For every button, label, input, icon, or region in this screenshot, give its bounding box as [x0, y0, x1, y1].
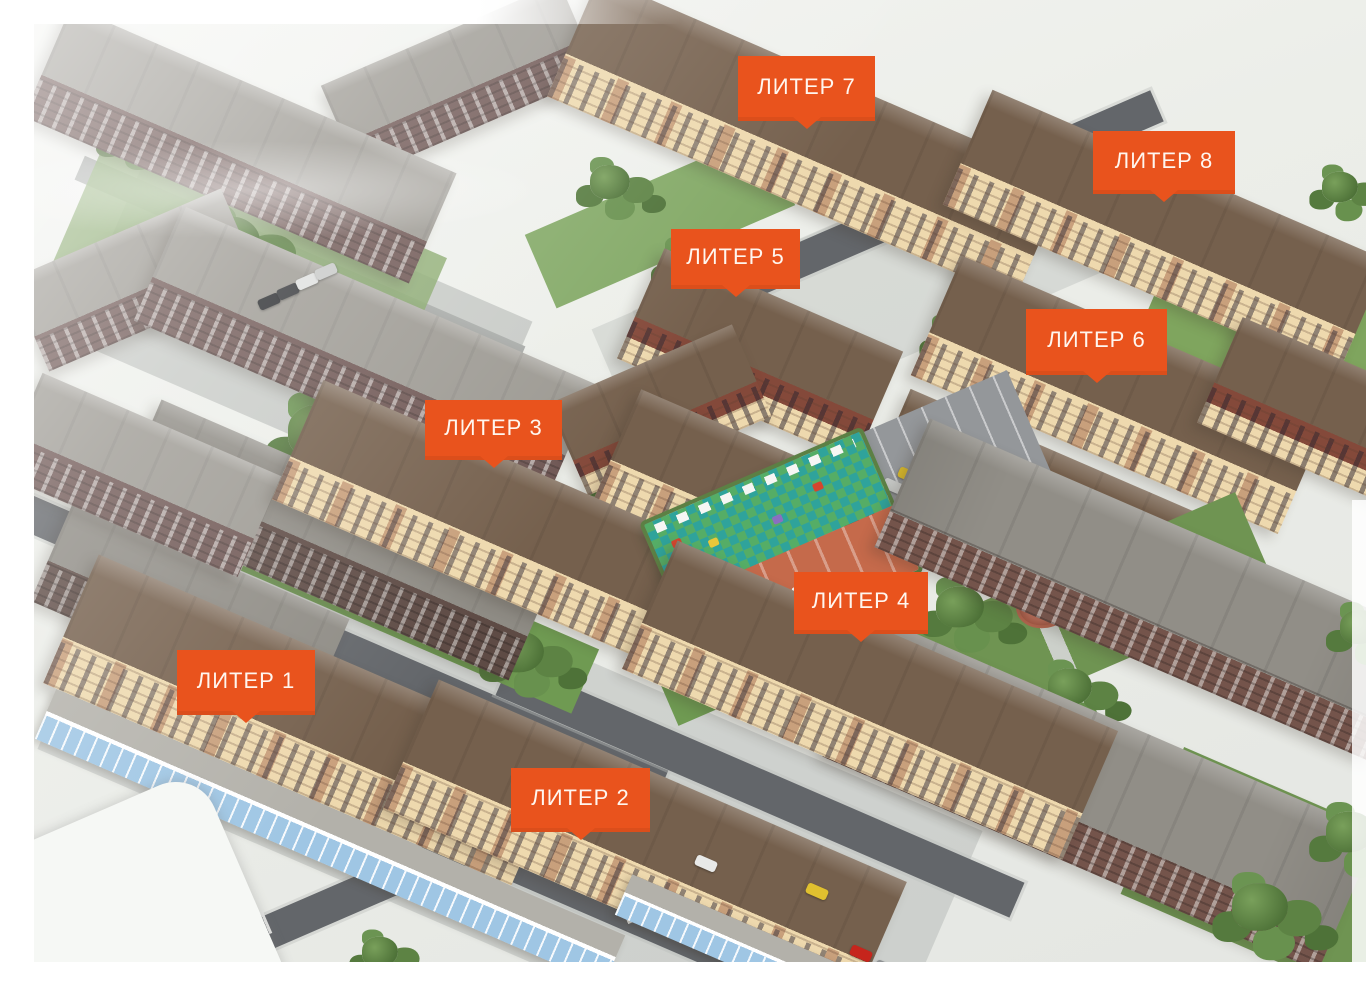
building-marker-liter-5[interactable]: ЛИТЕР 5 [671, 229, 800, 289]
play-equipment [707, 537, 719, 548]
marker-label: ЛИТЕР 6 [1047, 329, 1145, 351]
frame-strip-top [0, 0, 680, 24]
marker-pointer-icon [567, 828, 595, 840]
marker-pointer-icon [722, 285, 750, 297]
marker-pointer-icon [480, 456, 508, 468]
play-equipment [812, 481, 824, 492]
masterplan-scene: ЛИТЕР 1 ЛИТЕР 2 ЛИТЕР 3 ЛИТЕР 4 ЛИТЕР 5 … [0, 0, 1366, 1000]
marker-pointer-icon [1150, 190, 1178, 202]
marker-pointer-icon [1083, 371, 1111, 383]
marker-pointer-icon [847, 630, 875, 642]
building-marker-liter-4[interactable]: ЛИТЕР 4 [794, 572, 928, 634]
building-marker-liter-6[interactable]: ЛИТЕР 6 [1026, 309, 1167, 375]
play-equipment [771, 514, 783, 525]
marker-label: ЛИТЕР 8 [1115, 150, 1213, 172]
building-marker-liter-1[interactable]: ЛИТЕР 1 [177, 650, 315, 715]
frame-strip-right [1352, 500, 1366, 962]
frame-strip-bottom [0, 962, 1366, 1000]
marker-pointer-icon [793, 117, 821, 129]
building-marker-liter-3[interactable]: ЛИТЕР 3 [425, 400, 562, 460]
frame-strip-left [0, 0, 34, 1000]
marker-label: ЛИТЕР 5 [686, 246, 784, 268]
tree-grove [1322, 172, 1358, 203]
tree-grove [936, 587, 984, 628]
marker-label: ЛИТЕР 7 [757, 76, 855, 98]
building-marker-liter-8[interactable]: ЛИТЕР 8 [1093, 131, 1235, 194]
marker-label: ЛИТЕР 3 [444, 417, 542, 439]
marker-label: ЛИТЕР 2 [531, 787, 629, 809]
building-marker-liter-2[interactable]: ЛИТЕР 2 [511, 768, 650, 832]
marker-label: ЛИТЕР 4 [812, 590, 910, 612]
marker-label: ЛИТЕР 1 [197, 670, 295, 692]
building-marker-liter-7[interactable]: ЛИТЕР 7 [738, 56, 875, 121]
marker-pointer-icon [232, 711, 260, 723]
